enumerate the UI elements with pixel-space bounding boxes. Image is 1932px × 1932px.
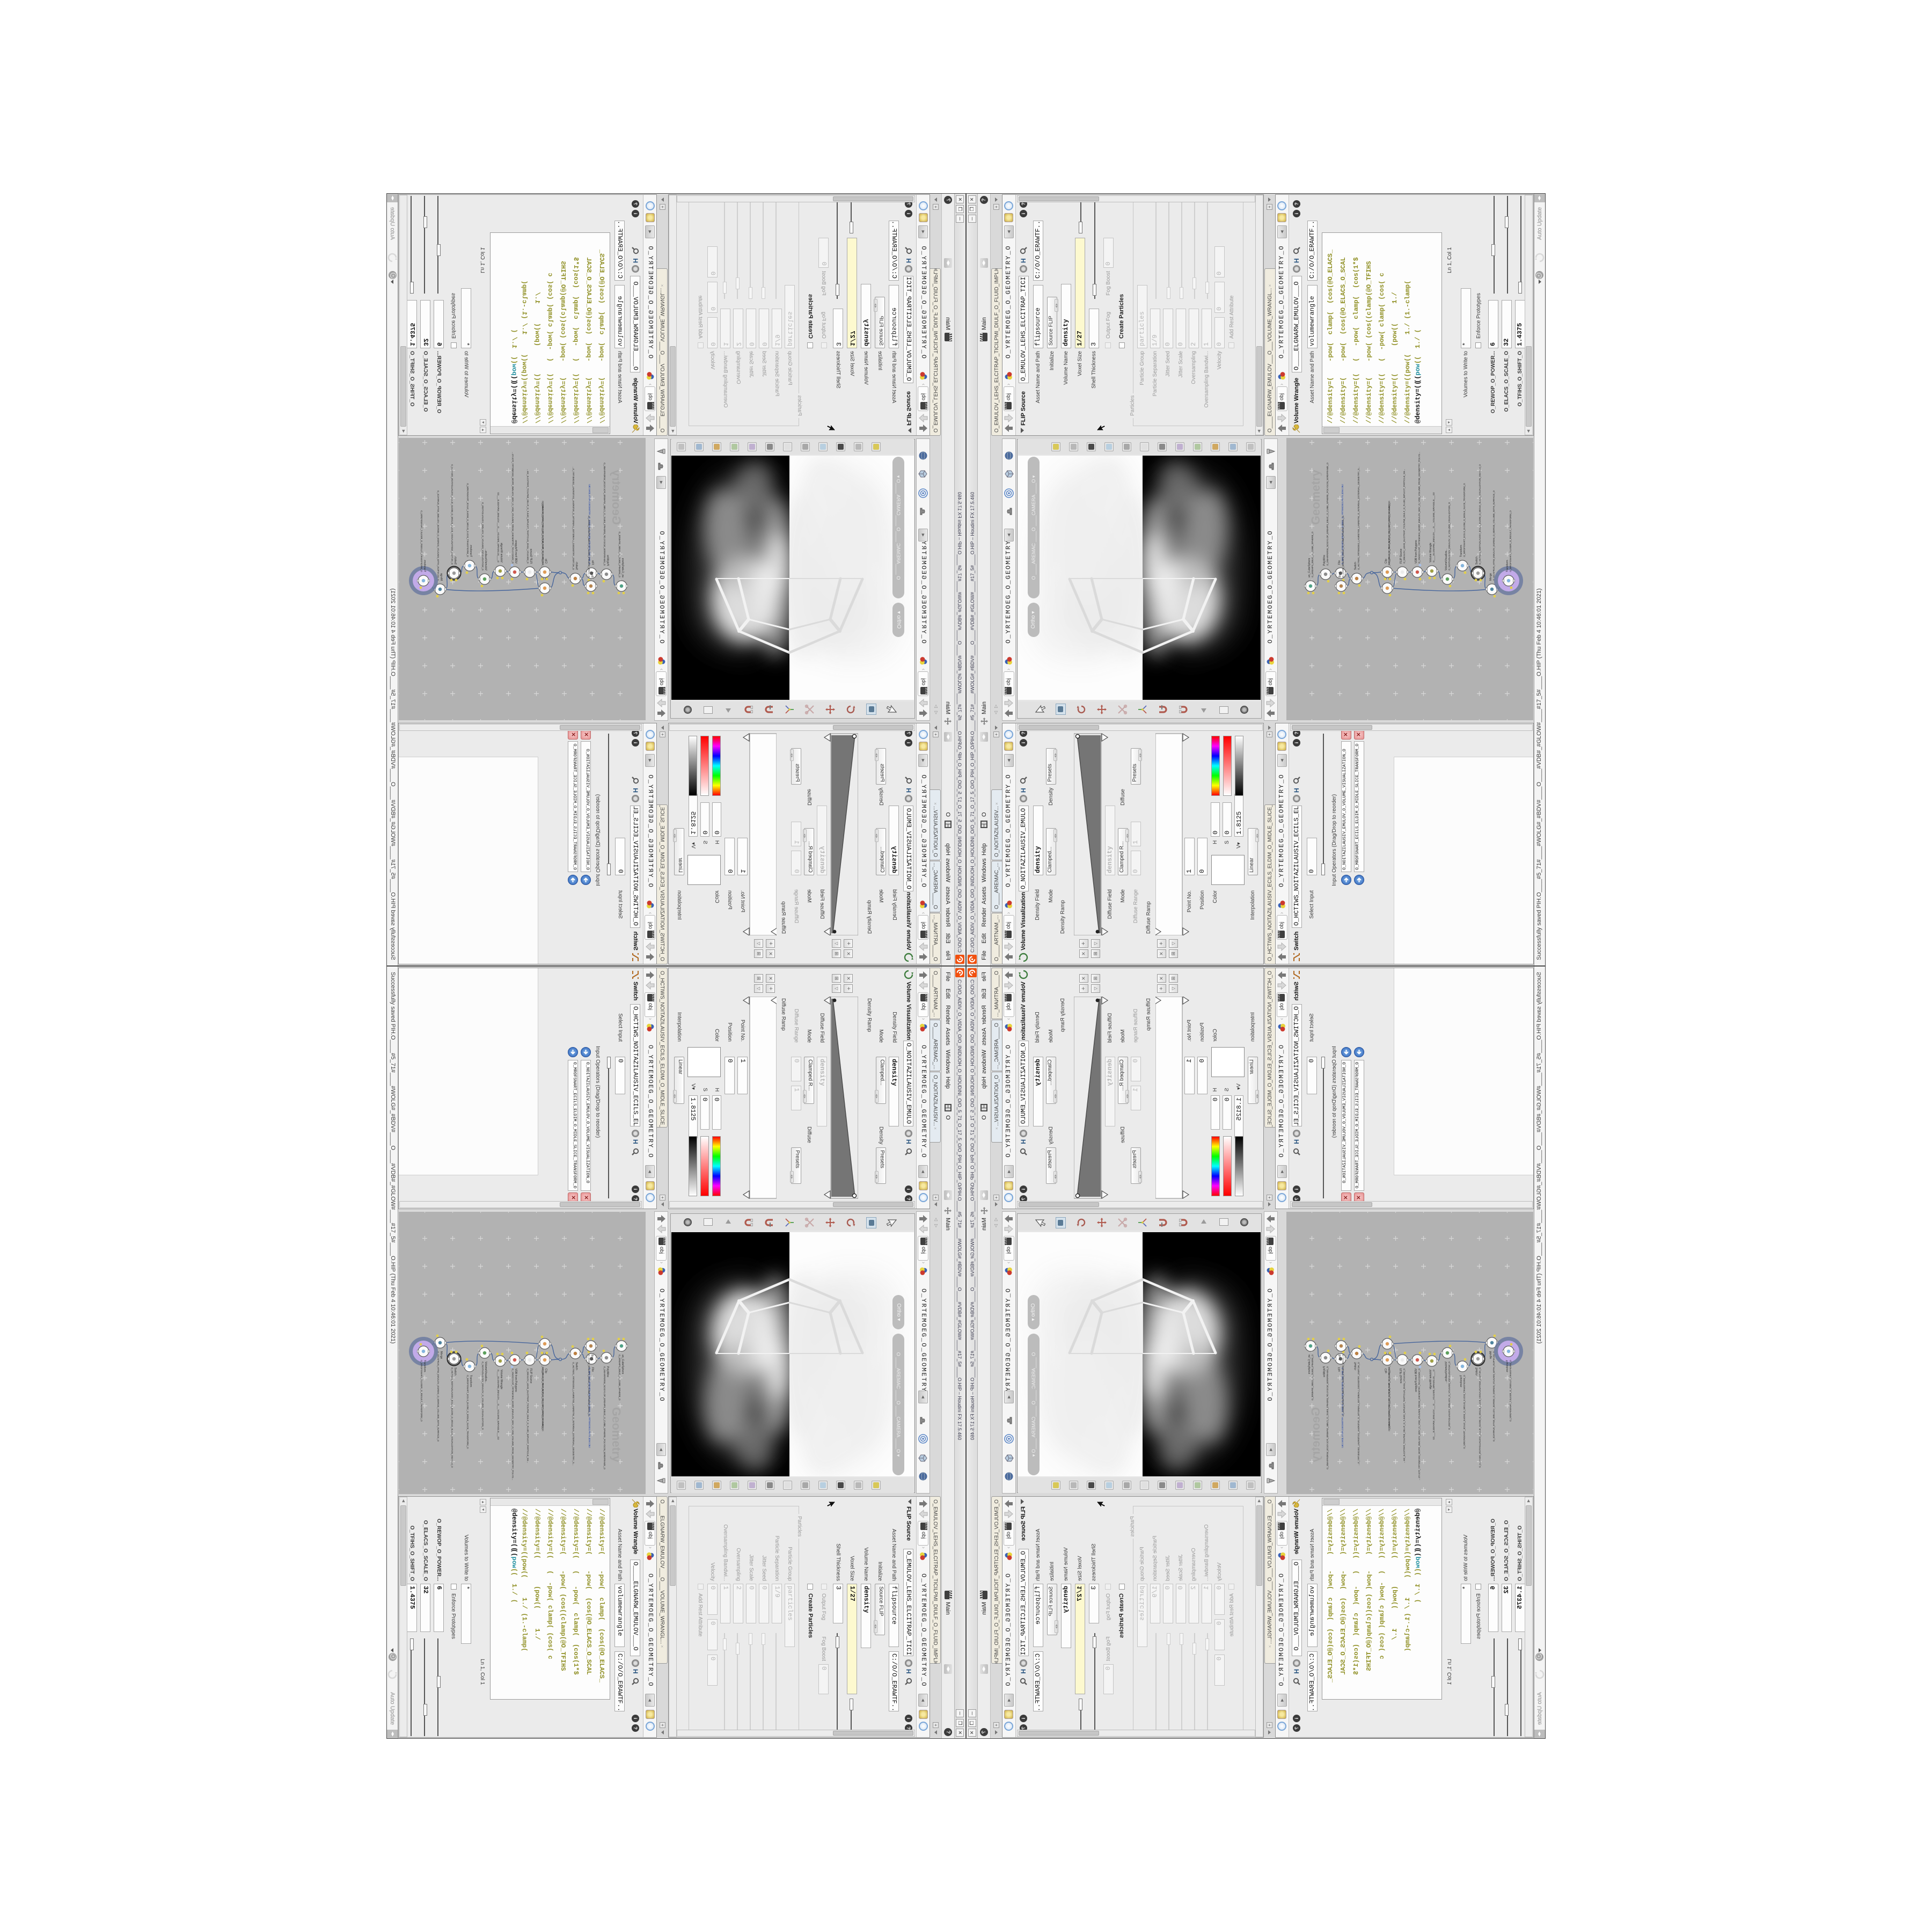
svg-text:O_MROFSNART_TLUSER_O_RESULT_TR: O_MROFSNART_TLUSER_O_RESULT_TRANSFORM_O bbox=[420, 1360, 423, 1422]
svg-text:Geometry: Geometry bbox=[1309, 470, 1322, 525]
svg-text:Volume Wrangle: Volume Wrangle bbox=[500, 1370, 503, 1389]
svg-text:O_EMULOV_LEHS_ELCITRAP_TICILPM: O_EMULOV_LEHS_ELCITRAP_TICILPMI_DIULF_O_… bbox=[526, 469, 529, 563]
svg-text:an_CubeSphere: an_CubeSphere bbox=[621, 1355, 624, 1374]
svg-text:O_ECAFRUS_HTIW_EMULOV_EGREM_O_: O_ECAFRUS_HTIW_EMULOV_EGREM_O_MERGE_VOLU… bbox=[1492, 1351, 1495, 1442]
svg-text:O_EMARFERIW_NOGYLOP_EREHPS_EBU: O_EMARFERIW_NOGYLOP_EREHPS_EBUC_O_CUBE_S… bbox=[1326, 1366, 1329, 1470]
svg-text:O_EMARFERIW_NOGYLOP_EREHPS_EBU: O_EMARFERIW_NOGYLOP_EREHPS_EBUC_O_CUBE_S… bbox=[1326, 462, 1329, 566]
svg-text:O_EMULOV_REPUS_PILC_O_CLIP_SUP: O_EMULOV_REPUS_PILC_O_CLIP_SUPER_VOLUME_… bbox=[1388, 501, 1391, 563]
svg-text:File: File bbox=[591, 560, 594, 565]
svg-text:O_HCTIWS_NOITAZILAUSIV_ECILS_E: O_HCTIWS_NOITAZILAUSIV_ECILS_ELDIM_O_MID… bbox=[451, 1367, 453, 1468]
svg-text:Merge: Merge bbox=[440, 1351, 443, 1359]
svg-text:O_LOOB_EREHPS_EBUC_O_CUBE_SPHE: O_LOOB_EREHPS_EBUC_O_CUBE_SPHERE_BOOL_O bbox=[588, 1355, 590, 1416]
svg-text:O_NOITAZILAUSIV_EMULOV_O_VOLUM: O_NOITAZILAUSIV_EMULOV_O_VOLUME_VISUALIZ… bbox=[1448, 1362, 1451, 1430]
svg-text:Clip: Clip bbox=[544, 1368, 547, 1373]
svg-text:Switch: Switch bbox=[453, 557, 457, 565]
svg-text:Switch: Switch bbox=[575, 1362, 578, 1370]
svg-text:O_SNOGYLOP_YRTEMOEG_MORF_EMULO: O_SNOGYLOP_YRTEMOEG_MORF_EMULOV_BDV_O_VD… bbox=[511, 1368, 514, 1480]
svg-text:O_SNOGYLOP_YRTEMOEG_MORF_EMULO: O_SNOGYLOP_YRTEMOEG_MORF_EMULOV_BDV_O_VD… bbox=[1418, 452, 1421, 563]
svg-text:Bool: Bool bbox=[590, 1355, 594, 1360]
svg-text:O_MROFSNART_TLUSER_O_RESULT_TR: O_MROFSNART_TLUSER_O_RESULT_TRANSFORM_O bbox=[420, 510, 423, 572]
svg-text:O_HCTIWS_YRTEMOEG_LANRETXE_LAN: O_HCTIWS_YRTEMOEG_LANRETXE_LANRETNI_O_IN… bbox=[572, 466, 575, 570]
svg-text:O_NOITAZILAUSIV_EMULOV_O_VOLUM: O_NOITAZILAUSIV_EMULOV_O_VOLUME_VISUALIZ… bbox=[1448, 502, 1451, 570]
svg-text:O____ELGNARW_EMULOV___O___VOLU: O____ELGNARW_EMULOV___O___VOLUME_WRANGLE… bbox=[497, 1370, 500, 1440]
svg-text:Switch: Switch bbox=[575, 562, 578, 570]
svg-text:O_HCTIWS_YRTEMOEG_LANRETXE_LAN: O_HCTIWS_YRTEMOEG_LANRETXE_LANRETNI_O_IN… bbox=[572, 1362, 575, 1466]
svg-text:O_EREHPS_EBUC_O_CUBE_SPHERE_O: O_EREHPS_EBUC_O_CUBE_SPHERE_O bbox=[618, 531, 621, 577]
svg-text:O____ELGNARW_EMULOV___O___VOLU: O____ELGNARW_EMULOV___O___VOLUME_WRANGLE… bbox=[1432, 492, 1435, 562]
svg-text:VolumeVisualiza...: VolumeVisualiza... bbox=[484, 1362, 487, 1384]
svg-text:O_EREHPS_EBUC_O_CUBE_SPHERE_O: O_EREHPS_EBUC_O_CUBE_SPHERE_O bbox=[1311, 1355, 1314, 1401]
svg-text:O_EMULOV_LEHS_ELCITRAP_TICILPM: O_EMULOV_LEHS_ELCITRAP_TICILPMI_DIULF_O_… bbox=[1403, 469, 1406, 563]
svg-text:File: File bbox=[591, 1367, 594, 1372]
svg-text:Transform: Transform bbox=[469, 1375, 472, 1387]
svg-text:FLIP Source: FLIP Source bbox=[529, 548, 532, 563]
svg-text:VDB from Polygons: VDB from Polygons bbox=[514, 1368, 517, 1392]
svg-text:O_MROFSNART_ECILS_ELDIM_O_MIDL: O_MROFSNART_ECILS_ELDIM_O_MIDLE_SLICE_TR… bbox=[1463, 483, 1466, 557]
svg-text:O_ECAFRUS_HTIW_EMULOV_EGREM_O_: O_ECAFRUS_HTIW_EMULOV_EGREM_O_MERGE_VOLU… bbox=[1492, 490, 1495, 581]
svg-text:O_LOOB_EREHPS_EBUC_O_CUBE_SPHE: O_LOOB_EREHPS_EBUC_O_CUBE_SPHERE_BOOL_O bbox=[1342, 516, 1344, 577]
svg-text:O_MROFSNART_ECILS_ELDIM_O_MIDL: O_MROFSNART_ECILS_ELDIM_O_MIDLE_SLICE_TR… bbox=[1463, 1375, 1466, 1449]
svg-text:O_EMULOV_REPUS_PILC_O_CLIP_SUP: O_EMULOV_REPUS_PILC_O_CLIP_SUPER_VOLUME_… bbox=[541, 1368, 544, 1431]
svg-text:O_EMULOV_LEHS_ELCITRAP_TICILPM: O_EMULOV_LEHS_ELCITRAP_TICILPMI_DIULF_O_… bbox=[1403, 1368, 1406, 1463]
svg-text:an_CubeSphere: an_CubeSphere bbox=[621, 558, 624, 577]
svg-text:O_SNOGYLOP_YRTEMOEG_MORF_EMULO: O_SNOGYLOP_YRTEMOEG_MORF_EMULOV_BDV_O_VD… bbox=[511, 452, 514, 563]
svg-text:VolumeVisualiza...: VolumeVisualiza... bbox=[484, 548, 487, 570]
svg-text:O_NOITAZILAUSIV_EMULOV_O_VOLUM: O_NOITAZILAUSIV_EMULOV_O_VOLUME_VISUALIZ… bbox=[481, 1362, 484, 1430]
svg-text:FLIP Source: FLIP Source bbox=[529, 1368, 532, 1384]
svg-text:O_LOOB_EREHPS_EBUC_O_CUBE_SPHE: O_LOOB_EREHPS_EBUC_O_CUBE_SPHERE_BOOL_O bbox=[1342, 1355, 1344, 1416]
svg-text:Clip: Clip bbox=[544, 559, 547, 563]
svg-text:O_HCTIWS_YRTEMOEG_LANRETXE_LAN: O_HCTIWS_YRTEMOEG_LANRETXE_LANRETNI_O_IN… bbox=[1357, 1362, 1360, 1466]
svg-text:O_ECAFRUS_HTIW_EMULOV_EGREM_O_: O_ECAFRUS_HTIW_EMULOV_EGREM_O_MERGE_VOLU… bbox=[437, 1351, 440, 1442]
svg-text:O_HCTIWS_YRTEMOEG_LANRETXE_LAN: O_HCTIWS_YRTEMOEG_LANRETXE_LANRETNI_O_IN… bbox=[1357, 466, 1360, 570]
svg-text:VDB from Polygons: VDB from Polygons bbox=[514, 540, 517, 563]
svg-text:O_EMARFERIW_NOGYLOP_EREHPS_EBU: O_EMARFERIW_NOGYLOP_EREHPS_EBUC_O_CUBE_S… bbox=[603, 462, 606, 566]
svg-text:Transform: Transform bbox=[423, 1360, 426, 1372]
svg-text:O_NOITAZILAUSIV_EMULOV_O_VOLUM: O_NOITAZILAUSIV_EMULOV_O_VOLUME_VISUALIZ… bbox=[481, 502, 484, 570]
svg-text:PolyWire: PolyWire bbox=[606, 1366, 609, 1377]
svg-text:Switch: Switch bbox=[453, 1367, 457, 1375]
svg-text:Transform: Transform bbox=[423, 560, 426, 572]
svg-text:O_MROFSNART_TLUSER_O_RESULT_TR: O_MROFSNART_TLUSER_O_RESULT_TRANSFORM_O bbox=[1509, 1360, 1512, 1422]
svg-text:O_HCTIWS_NOITAZILAUSIV_ECILS_E: O_HCTIWS_NOITAZILAUSIV_ECILS_ELDIM_O_MID… bbox=[1479, 464, 1481, 565]
svg-text:Geometry: Geometry bbox=[1309, 1407, 1322, 1462]
svg-text:Geometry: Geometry bbox=[610, 470, 623, 525]
svg-text:O_MROFSNART_TLUSER_O_RESULT_TR: O_MROFSNART_TLUSER_O_RESULT_TRANSFORM_O bbox=[1509, 510, 1512, 572]
svg-text:O____ELGNARW_EMULOV___O___VOLU: O____ELGNARW_EMULOV___O___VOLUME_WRANGLE… bbox=[1432, 1370, 1435, 1440]
svg-text:O_MROFSNART_ECILS_ELDIM_O_MIDL: O_MROFSNART_ECILS_ELDIM_O_MIDLE_SLICE_TR… bbox=[466, 483, 469, 557]
svg-text:O_EREHPS_EBUC_O_CUBE_SPHERE_O: O_EREHPS_EBUC_O_CUBE_SPHERE_O bbox=[1311, 531, 1314, 577]
svg-text:O_EREHPS_EBUC_O_CUBE_SPHERE_O: O_EREHPS_EBUC_O_CUBE_SPHERE_O bbox=[618, 1355, 621, 1401]
svg-text:O_MROFSNART_ECILS_ELDIM_O_MIDL: O_MROFSNART_ECILS_ELDIM_O_MIDLE_SLICE_TR… bbox=[466, 1375, 469, 1449]
svg-text:O_EMARFERIW_NOGYLOP_EREHPS_EBU: O_EMARFERIW_NOGYLOP_EREHPS_EBUC_O_CUBE_S… bbox=[603, 1366, 606, 1470]
svg-text:O_EMULOV_REPUS_PILC_O_CLIP_SUP: O_EMULOV_REPUS_PILC_O_CLIP_SUPER_VOLUME_… bbox=[1388, 1368, 1391, 1431]
svg-text:O_EMULOV_LEHS_ELCITRAP_TICILPM: O_EMULOV_LEHS_ELCITRAP_TICILPMI_DIULF_O_… bbox=[526, 1368, 529, 1463]
svg-text:O_HCTIWS_NOITAZILAUSIV_ECILS_E: O_HCTIWS_NOITAZILAUSIV_ECILS_ELDIM_O_MID… bbox=[451, 464, 453, 565]
svg-text:O_ECAFRUS_HTIW_EMULOV_EGREM_O_: O_ECAFRUS_HTIW_EMULOV_EGREM_O_MERGE_VOLU… bbox=[437, 490, 440, 581]
svg-text:Geometry: Geometry bbox=[610, 1407, 623, 1462]
svg-text:Bool: Bool bbox=[590, 572, 594, 577]
svg-text:Transform: Transform bbox=[469, 545, 472, 557]
svg-text:O_EMULOV_REPUS_PILC_O_CLIP_SUP: O_EMULOV_REPUS_PILC_O_CLIP_SUPER_VOLUME_… bbox=[541, 501, 544, 563]
svg-text:PolyWire: PolyWire bbox=[606, 555, 609, 566]
svg-text:O_HCTIWS_NOITAZILAUSIV_ECILS_E: O_HCTIWS_NOITAZILAUSIV_ECILS_ELDIM_O_MID… bbox=[1479, 1367, 1481, 1468]
svg-text:O____ELGNARW_EMULOV___O___VOLU: O____ELGNARW_EMULOV___O___VOLUME_WRANGLE… bbox=[497, 492, 500, 562]
svg-text:Merge: Merge bbox=[440, 573, 443, 581]
svg-text:O_LOOB_EREHPS_EBUC_O_CUBE_SPHE: O_LOOB_EREHPS_EBUC_O_CUBE_SPHERE_BOOL_O bbox=[588, 516, 590, 577]
svg-text:Volume Wrangle: Volume Wrangle bbox=[500, 543, 503, 562]
svg-text:O_SNOGYLOP_YRTEMOEG_MORF_EMULO: O_SNOGYLOP_YRTEMOEG_MORF_EMULOV_BDV_O_VD… bbox=[1418, 1368, 1421, 1480]
